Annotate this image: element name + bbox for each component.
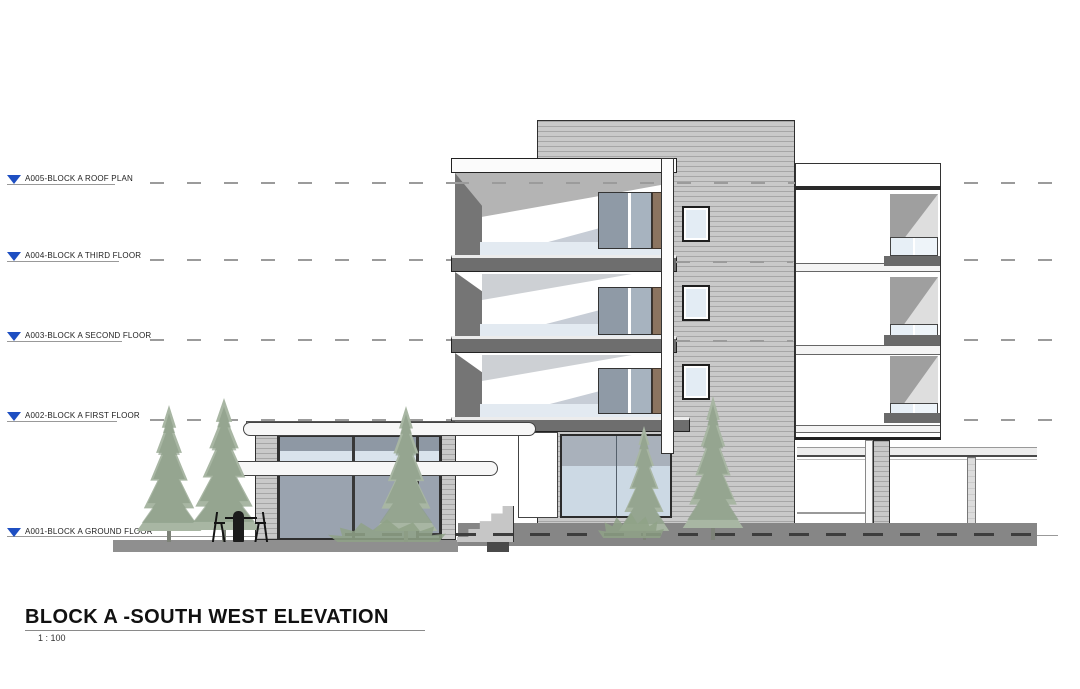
balcony-window-group (598, 192, 652, 249)
level-marker-icon (7, 528, 21, 537)
level-line-overlay (455, 182, 795, 184)
low-wall-cap (797, 512, 865, 514)
slab-band (796, 425, 940, 433)
window-pane (631, 369, 651, 413)
level-underline (7, 261, 119, 262)
ground-step (487, 542, 509, 552)
floor-slab (451, 336, 677, 353)
level-marker-roof: A005-BLOCK A ROOF PLAN (7, 174, 133, 184)
title-underline (25, 630, 425, 631)
level-line-overlay (676, 340, 793, 342)
level-underline (7, 184, 115, 185)
slab-band (796, 345, 940, 355)
level-label: A004-BLOCK A THIRD FLOOR (25, 251, 141, 261)
tower-window (682, 285, 710, 321)
balcony-window-group (598, 287, 652, 335)
tree (679, 396, 747, 540)
level-marker-icon (7, 175, 21, 184)
balcony-sill (884, 335, 940, 345)
mullion (352, 437, 355, 538)
level-line-overlay (676, 261, 793, 263)
pergola-beam (797, 447, 1037, 457)
level-marker-icon (7, 332, 21, 341)
level-marker-icon (7, 412, 21, 421)
floor-slab (451, 255, 677, 272)
slim-column (865, 440, 873, 524)
level-marker-third: A004-BLOCK A THIRD FLOOR (7, 251, 141, 261)
person-silhouette (233, 511, 244, 542)
window-pane (599, 369, 631, 413)
pavilion-side-wall (441, 428, 456, 540)
ground-line-tail (1037, 535, 1058, 536)
window-pane (631, 288, 651, 334)
window-pane (599, 288, 631, 334)
window-pane (891, 238, 915, 255)
level-label: A003-BLOCK A SECOND FLOOR (25, 331, 151, 341)
drawing-title: BLOCK A -SOUTH WEST ELEVATION (25, 606, 389, 629)
beam-underline (797, 459, 1037, 460)
roof-slab (451, 158, 677, 173)
balcony-sill (884, 256, 940, 266)
balcony-niche (890, 194, 938, 257)
drawing-scale: 1 : 100 (38, 633, 66, 643)
entry-door-panel (518, 432, 558, 518)
window-pane (599, 193, 631, 248)
table-and-chairs-silhouette (213, 510, 267, 542)
level-label: A002-BLOCK A FIRST FLOOR (25, 411, 140, 421)
level-marker-icon (7, 252, 21, 261)
tower-window (682, 364, 710, 400)
window-pane (915, 238, 937, 255)
chair (212, 512, 218, 542)
tower-window (682, 206, 710, 242)
chair-leg (254, 524, 259, 542)
niche-window-group (890, 237, 938, 256)
level-label: A005-BLOCK A ROOF PLAN (25, 174, 133, 184)
balcony-window-group (598, 368, 652, 414)
elevation-drawing-canvas: A005-BLOCK A ROOF PLAN A004-BLOCK A THIR… (0, 0, 1080, 689)
clapboard-pier (873, 440, 890, 524)
level-underline (7, 421, 117, 422)
level-marker-first: A002-BLOCK A FIRST FLOOR (7, 411, 140, 421)
level-underline (7, 341, 122, 342)
level-marker-second: A003-BLOCK A SECOND FLOOR (7, 331, 151, 341)
balcony-niche (890, 277, 938, 344)
tree (371, 406, 441, 542)
parapet-line (795, 186, 941, 190)
facade-column (661, 158, 674, 454)
pergola-column (967, 457, 976, 524)
level-marker-ground: A001-BLOCK A GROUND FLOOR (7, 527, 153, 537)
balcony-sill (884, 413, 940, 423)
chair-leg (220, 524, 225, 542)
window-pane (631, 193, 651, 248)
